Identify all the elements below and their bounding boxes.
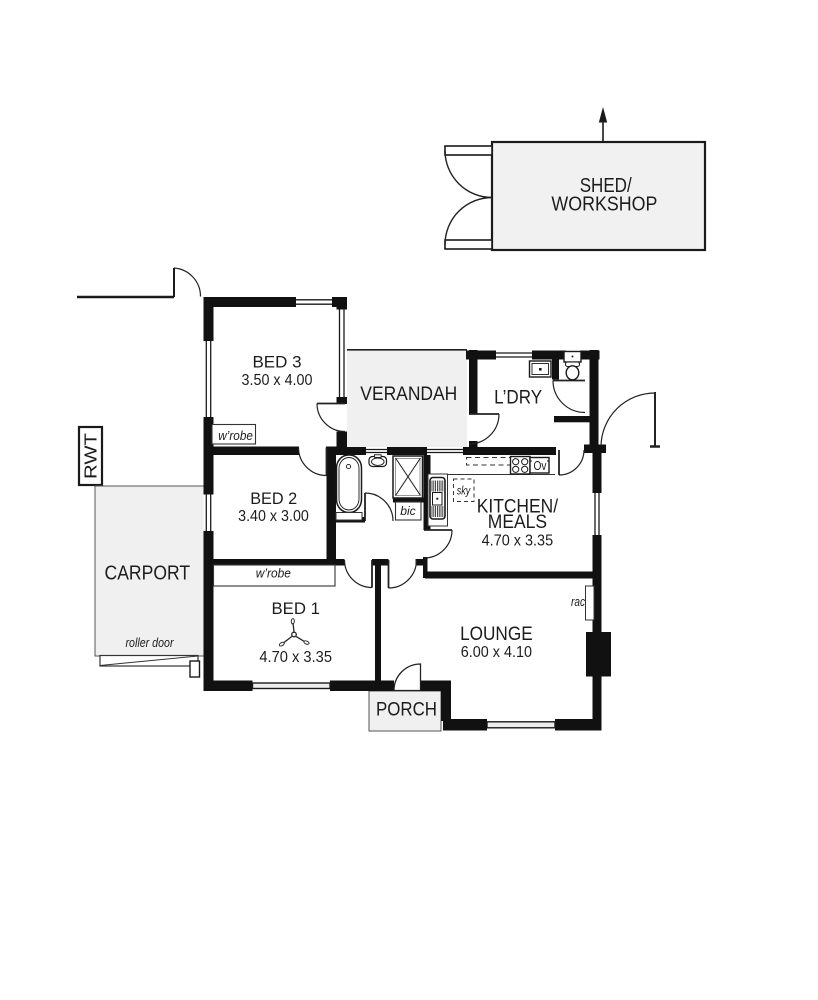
svg-text:4.70 x 3.35: 4.70 x 3.35 bbox=[482, 533, 554, 550]
svg-text:MEALS: MEALS bbox=[488, 511, 547, 533]
svg-text:WORKSHOP: WORKSHOP bbox=[551, 193, 657, 216]
svg-text:PORCH: PORCH bbox=[376, 698, 437, 720]
svg-text:6.00 x 4.10: 6.00 x 4.10 bbox=[461, 644, 532, 661]
svg-text:3.40 x 3.00: 3.40 x 3.00 bbox=[238, 508, 309, 525]
svg-text:BED 1: BED 1 bbox=[272, 600, 320, 618]
svg-text:3.50 x 4.00: 3.50 x 4.00 bbox=[242, 372, 313, 389]
svg-text:rac: rac bbox=[571, 595, 586, 609]
svg-text:w’robe: w’robe bbox=[256, 567, 291, 581]
svg-text:4.70 x 3.35: 4.70 x 3.35 bbox=[259, 649, 332, 666]
svg-text:bic: bic bbox=[400, 504, 416, 518]
svg-text:L’DRY: L’DRY bbox=[494, 387, 542, 409]
svg-text:roller door: roller door bbox=[126, 636, 175, 650]
svg-text:BED 3: BED 3 bbox=[253, 354, 302, 372]
svg-text:LOUNGE: LOUNGE bbox=[460, 623, 533, 645]
svg-text:RWT: RWT bbox=[81, 433, 101, 479]
svg-text:CARPORT: CARPORT bbox=[105, 562, 191, 585]
svg-text:Ov: Ov bbox=[534, 459, 548, 473]
svg-text:VERANDAH: VERANDAH bbox=[360, 383, 457, 405]
svg-text:w’robe: w’robe bbox=[218, 429, 253, 443]
svg-text:sky: sky bbox=[457, 486, 471, 498]
svg-text:BED 2: BED 2 bbox=[250, 490, 297, 508]
